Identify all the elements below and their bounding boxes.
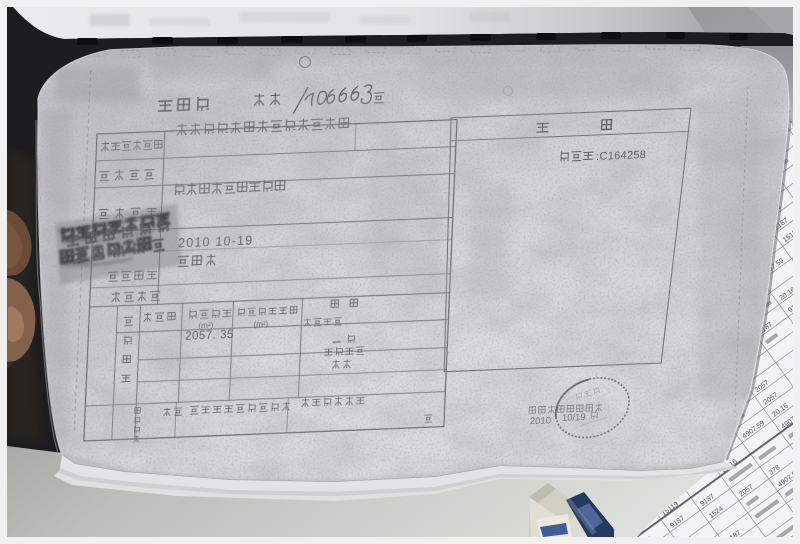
svg-text:1524: 1524: [793, 370, 800, 385]
svg-text:2016: 2016: [792, 55, 800, 70]
svg-text:9187: 9187: [687, 539, 704, 544]
